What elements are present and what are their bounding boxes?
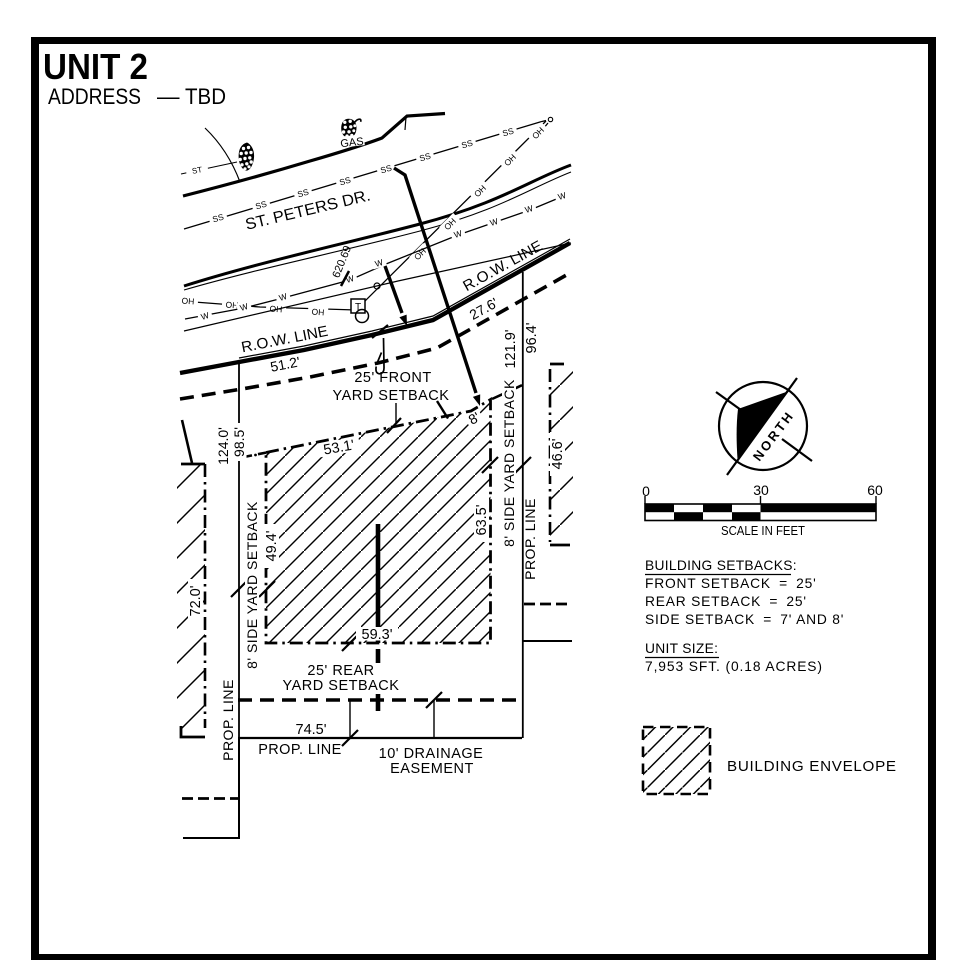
- svg-text:—: —: [157, 84, 180, 109]
- svg-text:72.0': 72.0': [188, 585, 204, 616]
- svg-text:YARD SETBACK: YARD SETBACK: [283, 678, 400, 694]
- svg-text:SCALE IN FEET: SCALE IN FEET: [721, 523, 805, 538]
- svg-text:63.5': 63.5': [474, 504, 490, 535]
- svg-text:98.5': 98.5': [231, 427, 247, 457]
- svg-text:7,953 SFT. (0.18 ACRES): 7,953 SFT. (0.18 ACRES): [645, 659, 823, 674]
- svg-text:FRONT SETBACK = 25': FRONT SETBACK = 25': [645, 576, 817, 591]
- svg-text:YARD SETBACK: YARD SETBACK: [333, 388, 450, 404]
- svg-text:R.O.W. LINE: R.O.W. LINE: [240, 323, 330, 356]
- svg-text:PROP. LINE: PROP. LINE: [522, 498, 538, 580]
- svg-text:GAS: GAS: [340, 136, 364, 150]
- svg-text:EASEMENT: EASEMENT: [390, 761, 474, 777]
- svg-text:0: 0: [642, 483, 650, 499]
- svg-text:10' DRAINAGE: 10' DRAINAGE: [379, 746, 484, 762]
- svg-text:25' FRONT: 25' FRONT: [354, 370, 431, 386]
- svg-text:121.9': 121.9': [503, 329, 519, 368]
- svg-text:8' SIDE YARD SETBACK: 8' SIDE YARD SETBACK: [244, 501, 260, 669]
- svg-text:BUILDING SETBACKS:: BUILDING SETBACKS:: [645, 558, 797, 573]
- svg-text:124.0': 124.0': [215, 427, 231, 465]
- svg-text:30: 30: [753, 482, 769, 498]
- svg-text:25' REAR: 25' REAR: [307, 663, 374, 679]
- svg-text:59.3': 59.3': [362, 627, 393, 643]
- svg-text:TBD: TBD: [185, 84, 226, 109]
- svg-text:OH: OH: [181, 296, 194, 307]
- svg-text:74.5': 74.5': [296, 722, 327, 738]
- svg-text:49.4': 49.4': [264, 530, 280, 561]
- svg-text:PROP. LINE: PROP. LINE: [258, 742, 342, 758]
- svg-text:8' SIDE YARD SETBACK: 8' SIDE YARD SETBACK: [501, 379, 517, 547]
- svg-text:BUILDING ENVELOPE: BUILDING ENVELOPE: [727, 758, 897, 775]
- svg-text:46.6': 46.6': [550, 438, 566, 469]
- svg-text:ST: ST: [191, 165, 203, 176]
- svg-text:SIDE SETBACK = 7' AND 8': SIDE SETBACK = 7' AND 8': [645, 612, 844, 627]
- svg-text:60: 60: [867, 482, 883, 498]
- svg-text:PROP. LINE: PROP. LINE: [220, 679, 236, 761]
- svg-text:UNIT 2: UNIT 2: [43, 46, 148, 87]
- svg-text:UNIT SIZE:: UNIT SIZE:: [645, 641, 718, 656]
- svg-text:OH: OH: [311, 307, 324, 318]
- svg-text:REAR SETBACK = 25': REAR SETBACK = 25': [645, 594, 807, 609]
- svg-text:ADDRESS: ADDRESS: [48, 84, 141, 109]
- svg-text:96.4': 96.4': [524, 322, 540, 353]
